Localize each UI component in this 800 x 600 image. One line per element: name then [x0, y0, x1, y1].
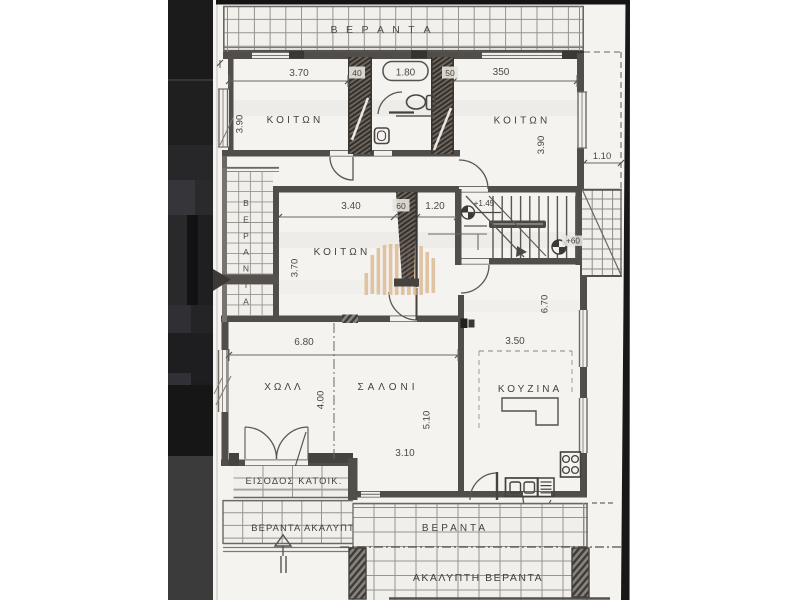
svg-text:ΑΚΑΛΥΠΤΗ ΒΕΡΑΝΤΑ: ΑΚΑΛΥΠΤΗ ΒΕΡΑΝΤΑ	[413, 572, 543, 584]
svg-text:3.10: 3.10	[395, 448, 415, 459]
svg-text:ΚΟΥΖΙΝΑ: ΚΟΥΖΙΝΑ	[498, 384, 562, 395]
svg-text:3.50: 3.50	[505, 336, 525, 347]
svg-text:Ρ: Ρ	[361, 24, 368, 36]
svg-text:4.00: 4.00	[316, 391, 327, 410]
svg-text:3.40: 3.40	[341, 201, 361, 212]
svg-text:50: 50	[445, 68, 455, 78]
svg-text:Ε: Ε	[243, 214, 249, 224]
svg-text:+1.45: +1.45	[474, 199, 495, 208]
svg-text:Α: Α	[377, 24, 384, 36]
svg-text:1.20: 1.20	[425, 201, 445, 212]
svg-text:Α: Α	[243, 247, 249, 257]
svg-text:ΧΩΛΛ: ΧΩΛΛ	[264, 382, 304, 393]
svg-text:3.90: 3.90	[536, 136, 547, 155]
svg-text:1.10: 1.10	[593, 151, 612, 162]
svg-text:Β: Β	[243, 198, 249, 208]
svg-text:ΒΕΡΑΝΤΑ ΑΚΑΛΥΠΤΗ: ΒΕΡΑΝΤΑ ΑΚΑΛΥΠΤΗ	[251, 522, 362, 533]
svg-text:3.70: 3.70	[289, 68, 309, 79]
svg-text:40: 40	[352, 68, 362, 78]
svg-text:5.10: 5.10	[422, 411, 433, 430]
svg-text:3.70: 3.70	[290, 259, 301, 278]
svg-text:ΚΟΙΤΩΝ: ΚΟΙΤΩΝ	[267, 115, 324, 126]
svg-text:1.80: 1.80	[396, 68, 416, 79]
svg-text:6.70: 6.70	[540, 295, 551, 314]
svg-text:ΣΑΛΟΝΙ: ΣΑΛΟΝΙ	[357, 382, 418, 393]
svg-text:ΚΟΙΤΩΝ: ΚΟΙΤΩΝ	[494, 116, 551, 127]
svg-text:+60: +60	[566, 237, 580, 246]
svg-text:Β: Β	[330, 24, 337, 36]
svg-text:6.80: 6.80	[294, 337, 314, 348]
svg-text:60: 60	[396, 201, 406, 211]
svg-text:Α: Α	[243, 296, 249, 306]
svg-text:Α: Α	[423, 24, 430, 36]
svg-text:ΕΙΣΟΔΟΣ ΚΑΤΟΙΚ.: ΕΙΣΟΔΟΣ ΚΑΤΟΙΚ.	[246, 476, 343, 486]
svg-text:3.90: 3.90	[235, 115, 246, 134]
svg-text:Ρ: Ρ	[243, 231, 249, 241]
svg-text:ΚΟΙΤΩΝ: ΚΟΙΤΩΝ	[314, 247, 371, 258]
svg-text:Τ: Τ	[408, 24, 415, 36]
svg-text:Ν: Ν	[392, 24, 400, 36]
svg-text:Ν: Ν	[243, 264, 249, 274]
svg-text:Ε: Ε	[346, 24, 353, 36]
svg-text:350: 350	[493, 67, 510, 78]
svg-text:ΒΕΡΑΝΤΑ: ΒΕΡΑΝΤΑ	[422, 523, 488, 534]
